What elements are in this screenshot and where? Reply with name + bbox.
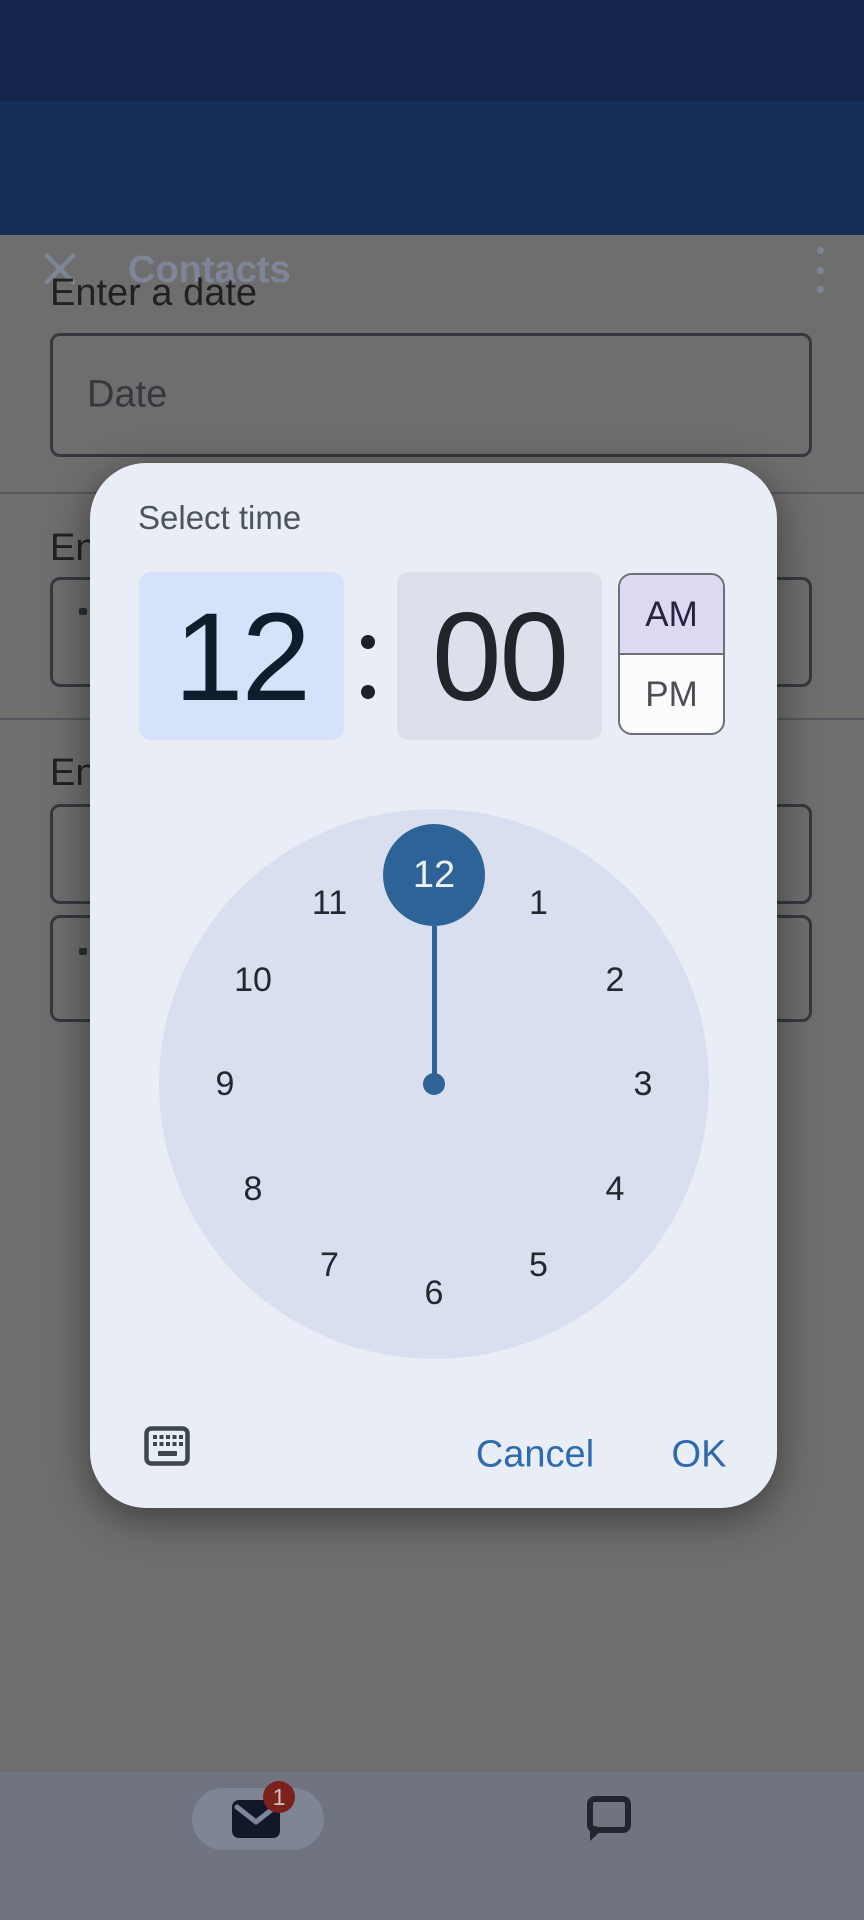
clock-number[interactable]: 10 [227, 954, 279, 1006]
pm-option[interactable]: PM [620, 655, 723, 734]
app-bar: Contacts [0, 101, 864, 235]
time-colon [354, 635, 382, 699]
cancel-button[interactable]: Cancel [470, 1433, 600, 1478]
mail-badge: 1 [263, 1781, 295, 1813]
phone-screen: Contacts Enter a date Date En En 1 Selec… [0, 0, 864, 1920]
clock-number[interactable]: 8 [227, 1163, 279, 1215]
clock-number[interactable]: 3 [617, 1058, 669, 1110]
overflow-menu-icon[interactable] [812, 247, 828, 293]
date-placeholder: Date [87, 374, 167, 417]
clock-number[interactable]: 7 [304, 1239, 356, 1291]
ok-button[interactable]: OK [666, 1433, 733, 1478]
date-input[interactable]: Date [50, 333, 812, 457]
clock-face[interactable]: 121234567891011 [159, 809, 709, 1359]
partial-text-mark [79, 948, 87, 955]
partial-text-mark [79, 608, 87, 615]
clock-number[interactable]: 1 [513, 877, 565, 929]
chat-icon[interactable] [586, 1795, 632, 1843]
status-bar [0, 0, 864, 101]
clock-number[interactable]: 9 [199, 1058, 251, 1110]
dialog-title: Select time [138, 499, 301, 537]
time-picker-dialog: Select time 12 00 AM PM 121234567891011 … [90, 463, 777, 1508]
hour-field[interactable]: 12 [139, 572, 344, 740]
clock-number[interactable]: 11 [304, 877, 356, 929]
clock-hand [432, 926, 437, 1084]
am-option[interactable]: AM [620, 575, 723, 655]
date-field-label: Enter a date [50, 272, 257, 315]
clock-number-selected[interactable]: 12 [383, 824, 485, 926]
clock-number[interactable]: 6 [408, 1267, 460, 1319]
minute-field[interactable]: 00 [397, 572, 602, 740]
bottom-nav: 1 [0, 1772, 864, 1920]
clock-number[interactable]: 5 [513, 1239, 565, 1291]
am-pm-toggle: AM PM [618, 573, 725, 735]
keyboard-toggle-icon[interactable] [144, 1426, 190, 1466]
clock-number[interactable]: 2 [589, 954, 641, 1006]
clock-number[interactable]: 4 [589, 1163, 641, 1215]
